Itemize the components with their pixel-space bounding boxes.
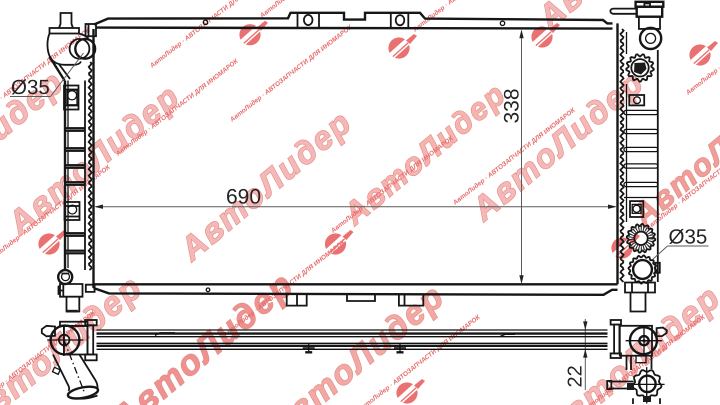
svg-text:338: 338 xyxy=(501,88,524,123)
svg-text:Ø35: Ø35 xyxy=(11,76,50,99)
svg-text:22: 22 xyxy=(565,365,587,387)
svg-text:690: 690 xyxy=(226,186,261,209)
svg-text:Ø35: Ø35 xyxy=(668,226,707,249)
